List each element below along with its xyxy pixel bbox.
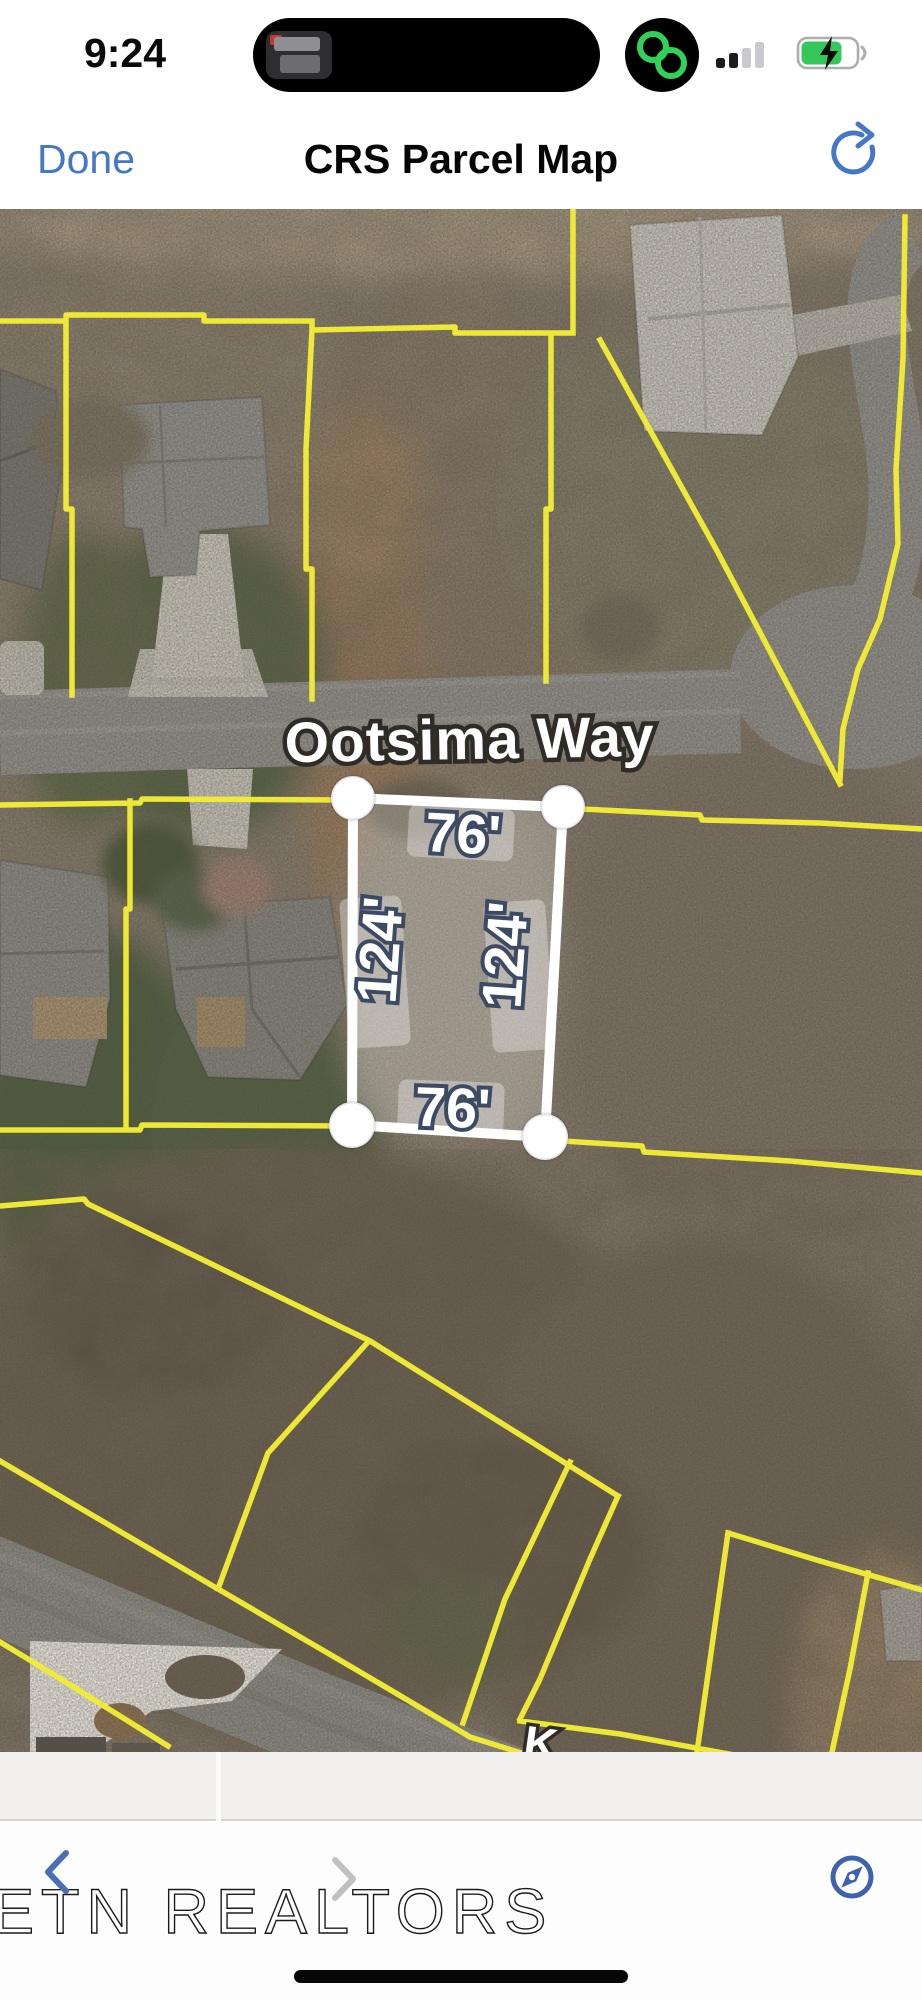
nav-bar: Done CRS Parcel Map [0, 118, 922, 209]
dimension-side-right: 124' [469, 899, 539, 1010]
refresh-button[interactable] [822, 120, 886, 184]
footer: ETN REALTORS [0, 1821, 922, 2000]
dimension-rear: 76' [414, 1075, 492, 1141]
parcel-map[interactable]: Ootsima Way K 76' 124' 124' 76' [0, 209, 922, 1752]
home-indicator[interactable] [294, 1970, 628, 1983]
parcel-handle-top-left[interactable] [331, 776, 375, 820]
app-screen: 9:24 Done CRS Parc [0, 0, 922, 2000]
dynamic-island-activity[interactable] [625, 18, 699, 92]
media-thumbnail[interactable] [266, 31, 332, 79]
page-strip [0, 1752, 922, 1821]
dynamic-island[interactable] [253, 18, 600, 92]
cellular-signal-icon [716, 42, 768, 68]
dimension-side-left: 124' [344, 894, 414, 1005]
dimension-front: 76' [424, 800, 503, 867]
clock: 9:24 [70, 30, 180, 77]
watermark: ETN REALTORS [0, 1877, 553, 1947]
page-title: CRS Parcel Map [0, 136, 922, 183]
street-label: Ootsima Way [284, 705, 655, 775]
page-strip-divider [216, 1752, 221, 1821]
compass-icon[interactable] [833, 1858, 871, 1896]
selected-parcel[interactable]: 76' 124' 124' 76' [329, 776, 585, 1160]
status-bar: 9:24 [0, 0, 922, 100]
link-rings-icon [625, 18, 699, 92]
street-label-partial: K [521, 1715, 561, 1752]
parcel-handle-bottom-right[interactable] [522, 1114, 568, 1160]
battery-charging-icon [796, 34, 872, 72]
parcel-handle-bottom-left[interactable] [329, 1102, 375, 1148]
map-viewport: Ootsima Way K 76' 124' 124' 76' [0, 209, 922, 1752]
parcel-handle-top-right[interactable] [541, 785, 585, 829]
